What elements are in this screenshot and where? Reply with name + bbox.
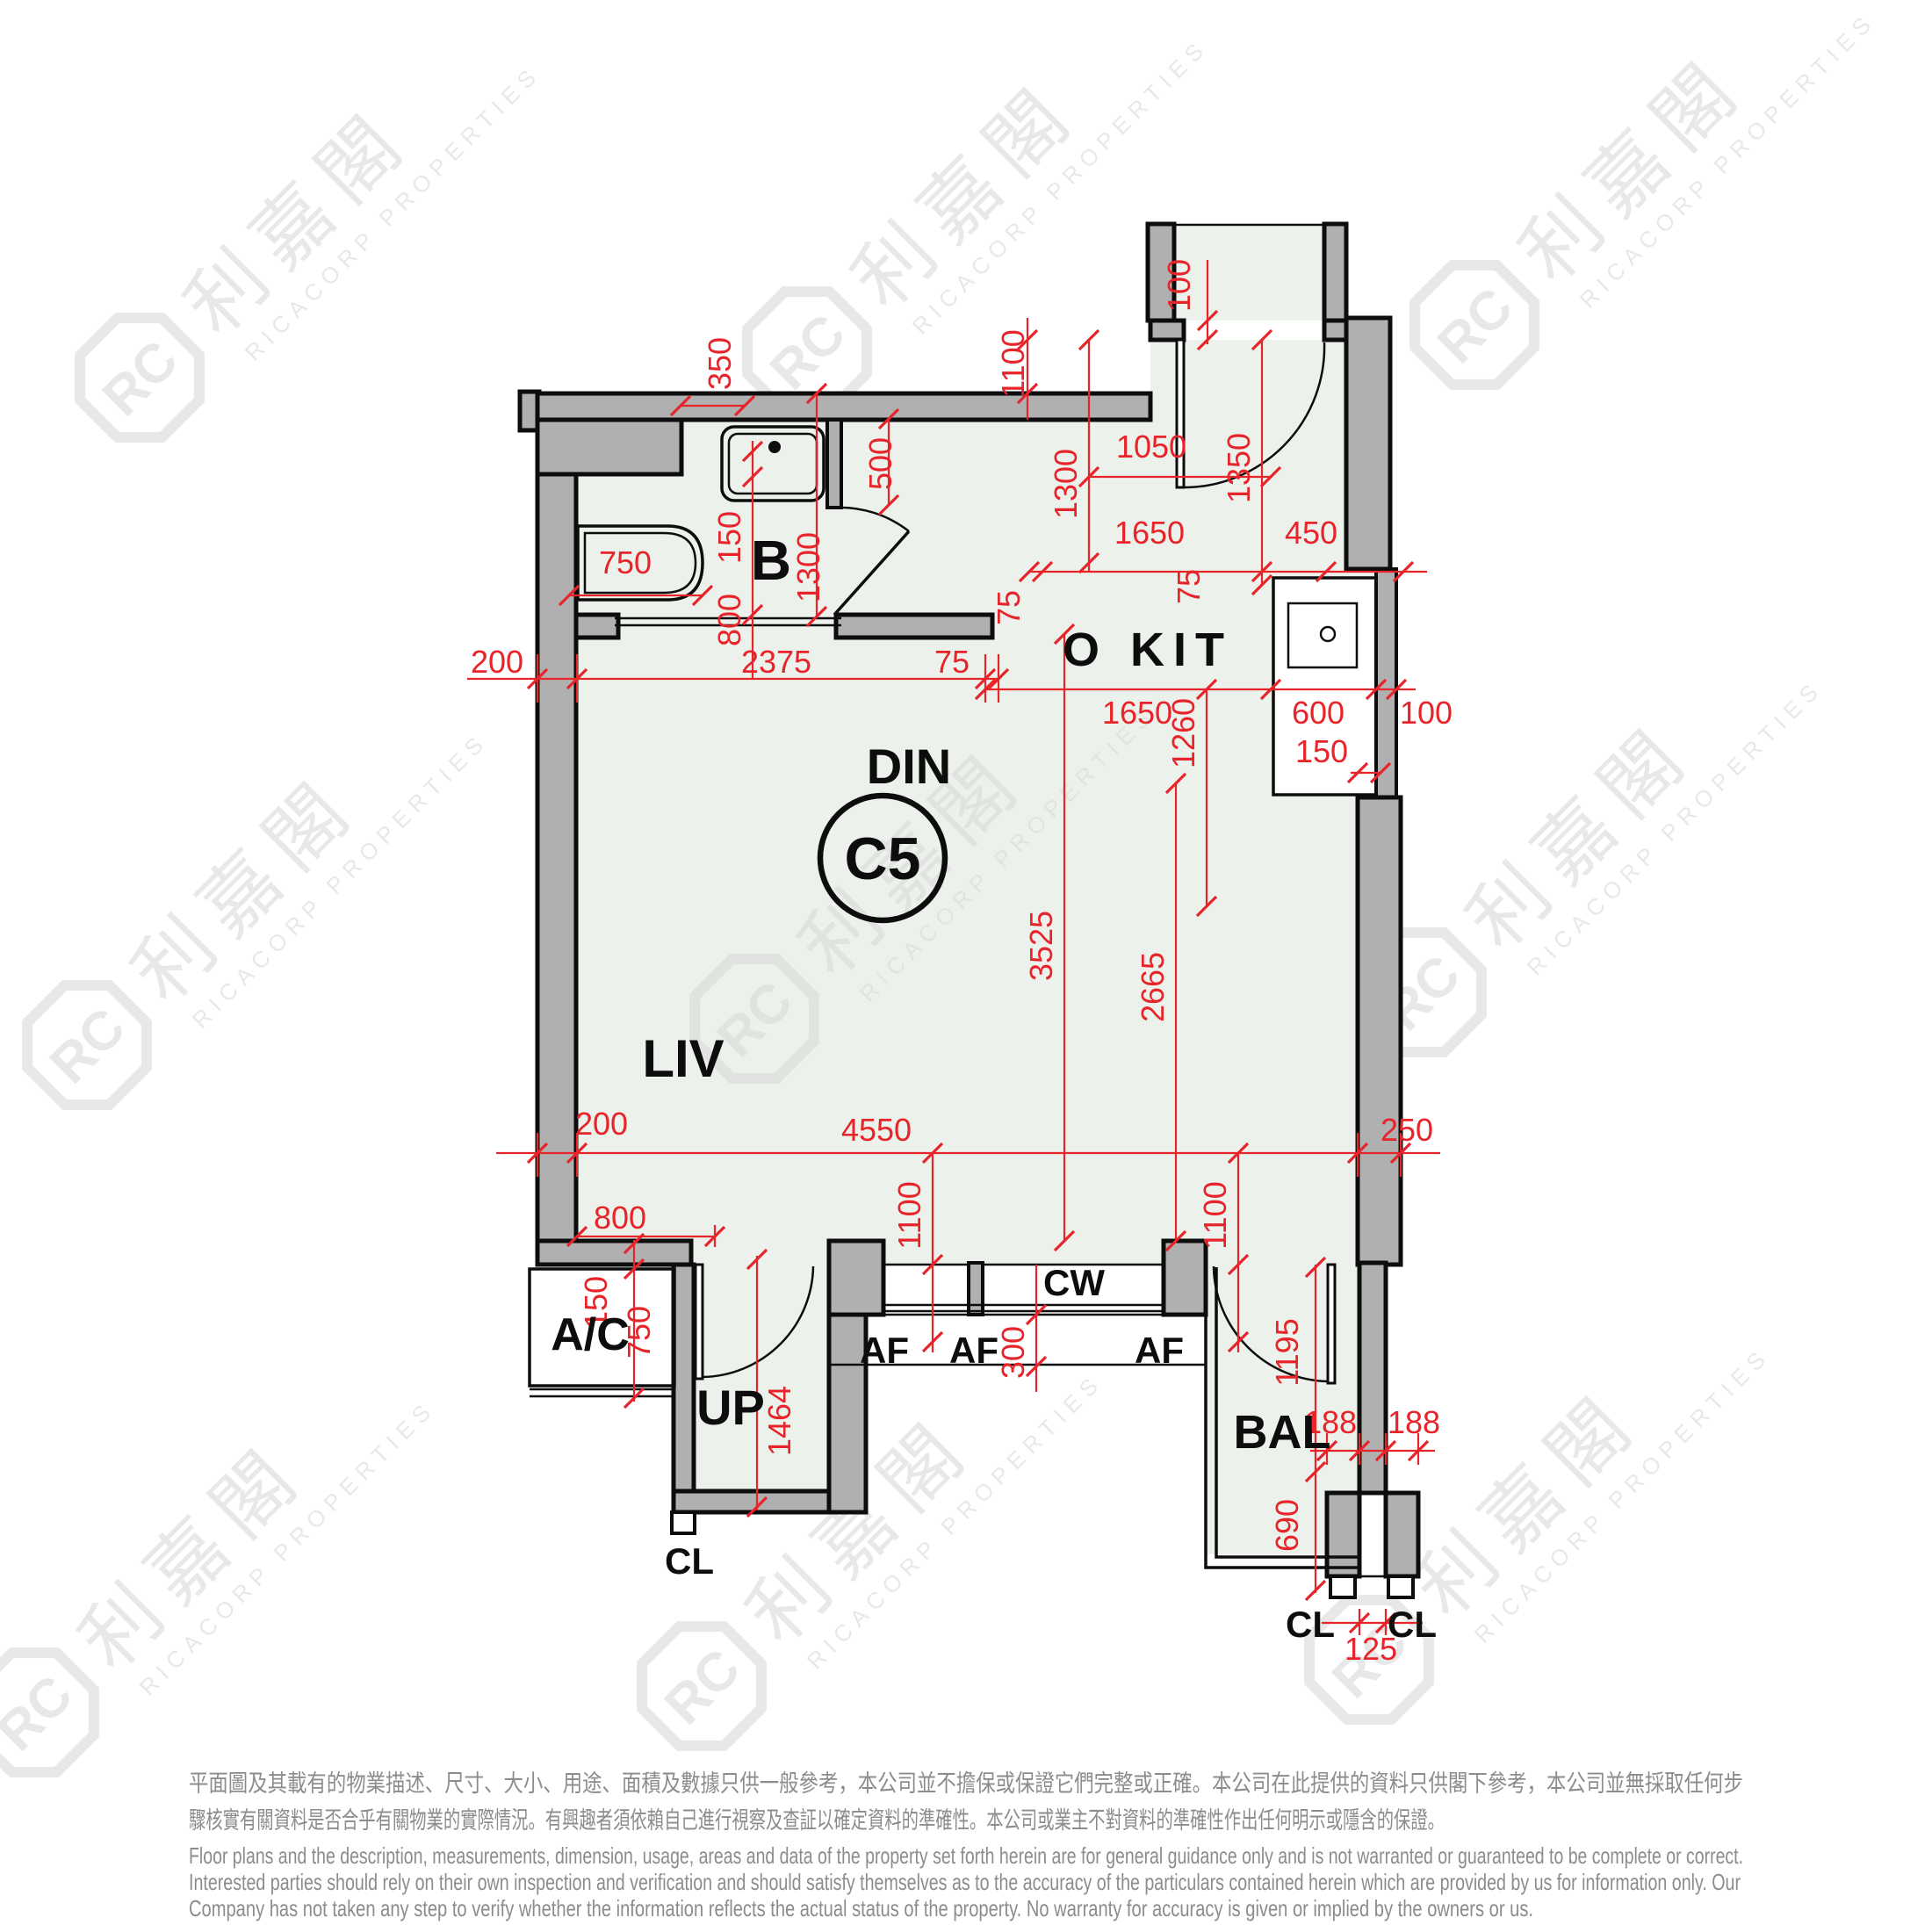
cl-foot-balcony-right bbox=[1388, 1576, 1413, 1597]
wall-balcony-east bbox=[1359, 1263, 1386, 1493]
dim-1300-bath: 1300 bbox=[790, 532, 826, 602]
dim-1464: 1464 bbox=[761, 1386, 797, 1456]
dim-75-left: 75 bbox=[991, 590, 1027, 625]
dim-1260: 1260 bbox=[1165, 698, 1201, 768]
dim-150-kit: 150 bbox=[1295, 733, 1348, 769]
label-ac: A/C bbox=[551, 1309, 630, 1360]
cl-foot-balcony-left bbox=[1330, 1576, 1355, 1597]
dim-3525: 3525 bbox=[1023, 911, 1059, 981]
wall-cl-leg-left bbox=[1327, 1493, 1359, 1576]
dim-450: 450 bbox=[1285, 515, 1337, 551]
label-cl-up: CL bbox=[665, 1540, 714, 1582]
dim-300: 300 bbox=[995, 1326, 1031, 1379]
dim-1100-cw-left: 1100 bbox=[891, 1181, 927, 1249]
dim-1650-kit: 1650 bbox=[1102, 695, 1172, 731]
dim-250: 250 bbox=[1381, 1112, 1433, 1148]
label-af-3: AF bbox=[1135, 1330, 1184, 1371]
label-kitchen: O KIT bbox=[1063, 624, 1233, 676]
dim-500: 500 bbox=[862, 437, 898, 490]
wall-east-living bbox=[1358, 797, 1401, 1265]
label-living: LIV bbox=[642, 1029, 724, 1088]
floor-plan-canvas: RC 利嘉閣 RICACORP PROPERTIES bbox=[0, 0, 1932, 1932]
wall-east-upper bbox=[1346, 318, 1390, 569]
wall-up-west bbox=[674, 1265, 694, 1493]
disclaimer-en-line3: Company has not taken any step to verify… bbox=[189, 1895, 1533, 1921]
dim-4550: 4550 bbox=[841, 1112, 912, 1148]
wall-north-bathroom bbox=[537, 393, 1150, 420]
wall-bath-south-right bbox=[836, 615, 992, 638]
dim-100-kit: 100 bbox=[1400, 695, 1453, 731]
dim-1195: 1195 bbox=[1269, 1318, 1305, 1386]
dim-1300-lobby: 1300 bbox=[1048, 449, 1084, 519]
dim-1100-top: 1100 bbox=[995, 329, 1031, 397]
dim-75-stub: 75 bbox=[934, 644, 970, 680]
label-af-2: AF bbox=[949, 1330, 998, 1371]
cl-slot-outline bbox=[1359, 1506, 1386, 1576]
disclaimer-en-line2: Interested parties should rely on their … bbox=[189, 1869, 1741, 1895]
dim-750-tub: 750 bbox=[599, 544, 652, 580]
dim-150-bath: 150 bbox=[711, 511, 747, 564]
dim-690: 690 bbox=[1269, 1499, 1305, 1552]
dim-1050: 1050 bbox=[1116, 429, 1186, 465]
cw-post-right bbox=[1164, 1241, 1206, 1315]
disclaimer-zh-line2: 驟核實有關資料是否合乎有關物業的實際情況。有興趣者須依賴自己進行視察及查証以確定… bbox=[189, 1807, 1445, 1834]
cl-foot-left bbox=[672, 1512, 695, 1533]
unit-id: C5 bbox=[845, 825, 921, 892]
dim-800-liv: 800 bbox=[594, 1200, 646, 1236]
disclaimer-zh-line1: 平面圖及其載有的物業描述、尺寸、大小、用途、面積及數據只供一般參考，本公司並不擔… bbox=[189, 1770, 1743, 1797]
dim-100-top: 100 bbox=[1161, 259, 1197, 312]
label-af-1: AF bbox=[860, 1330, 909, 1371]
label-cl-left: CL bbox=[1286, 1604, 1335, 1645]
dim-200-liv: 200 bbox=[575, 1106, 628, 1142]
wall-alcove-right bbox=[1324, 224, 1346, 321]
wall-bath-south-left bbox=[576, 615, 618, 638]
dim-2375: 2375 bbox=[741, 644, 811, 680]
cw-mullion bbox=[969, 1263, 983, 1315]
basin-faucet-icon bbox=[768, 441, 781, 453]
wall-nw-mass bbox=[537, 420, 681, 474]
dim-1650-lobby: 1650 bbox=[1114, 515, 1185, 551]
wall-entrance-jamb-right bbox=[1324, 321, 1346, 340]
label-dining: DIN bbox=[867, 739, 951, 794]
disclaimer-en-line1: Floor plans and the description, measure… bbox=[189, 1842, 1743, 1869]
wall-south-left bbox=[537, 1241, 691, 1265]
dim-800-bath: 800 bbox=[711, 594, 747, 646]
dim-1350: 1350 bbox=[1221, 433, 1257, 503]
wall-cl-leg-right bbox=[1386, 1493, 1418, 1576]
dim-200-top: 200 bbox=[471, 644, 523, 680]
dim-600: 600 bbox=[1292, 695, 1344, 731]
balcony-door-leaf bbox=[1328, 1265, 1335, 1383]
label-cl-right: CL bbox=[1388, 1604, 1437, 1645]
dim-2665: 2665 bbox=[1135, 952, 1171, 1022]
label-balcony: BAL bbox=[1234, 1406, 1331, 1459]
dim-188-right: 188 bbox=[1388, 1404, 1440, 1440]
wall-east-kitchen bbox=[1376, 569, 1396, 799]
dim-350: 350 bbox=[702, 337, 738, 390]
label-bathroom: B bbox=[751, 529, 791, 592]
entrance-door-leaf bbox=[1177, 340, 1184, 487]
label-up: UP bbox=[696, 1380, 765, 1435]
up-door-leaf bbox=[696, 1265, 703, 1379]
dim-75-right: 75 bbox=[1171, 569, 1207, 604]
label-curtain-wall: CW bbox=[1043, 1262, 1105, 1303]
floor-plan-page: RC 利嘉閣 RICACORP PROPERTIES bbox=[0, 0, 1932, 1932]
wall-bath-partition bbox=[827, 420, 841, 508]
wall-entrance-jamb-left bbox=[1150, 321, 1184, 340]
dim-1100-cw-right: 1100 bbox=[1197, 1181, 1233, 1249]
disclaimer: 平面圖及其載有的物業描述、尺寸、大小、用途、面積及數據只供一般參考，本公司並不擔… bbox=[189, 1770, 1743, 1921]
ac-louvre-lines bbox=[530, 1389, 674, 1396]
cw-post-left bbox=[829, 1241, 883, 1315]
